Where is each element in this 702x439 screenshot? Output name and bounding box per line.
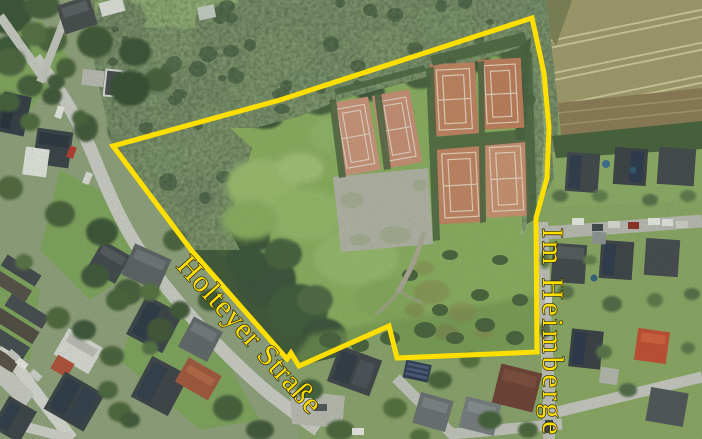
svg-text:Im Heimberge: Im Heimberge (536, 228, 569, 438)
